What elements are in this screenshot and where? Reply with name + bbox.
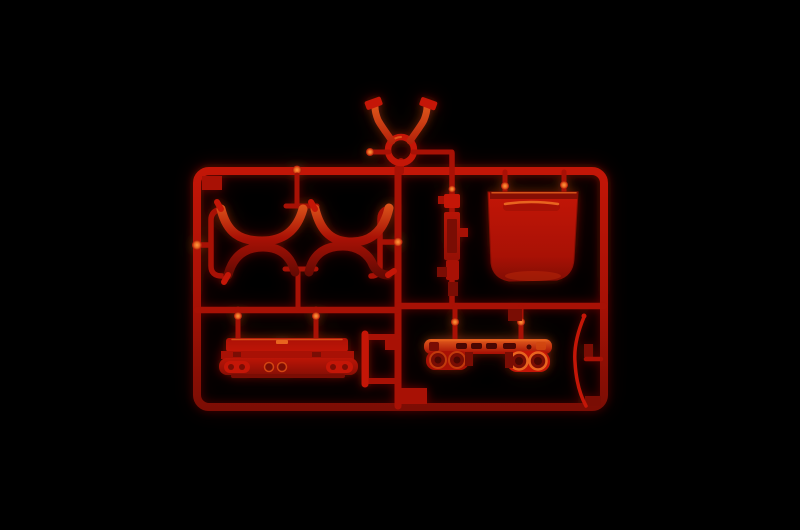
sprue-sharp xyxy=(192,96,604,407)
photo-canvas xyxy=(0,0,800,530)
sprue-photo xyxy=(0,0,800,530)
